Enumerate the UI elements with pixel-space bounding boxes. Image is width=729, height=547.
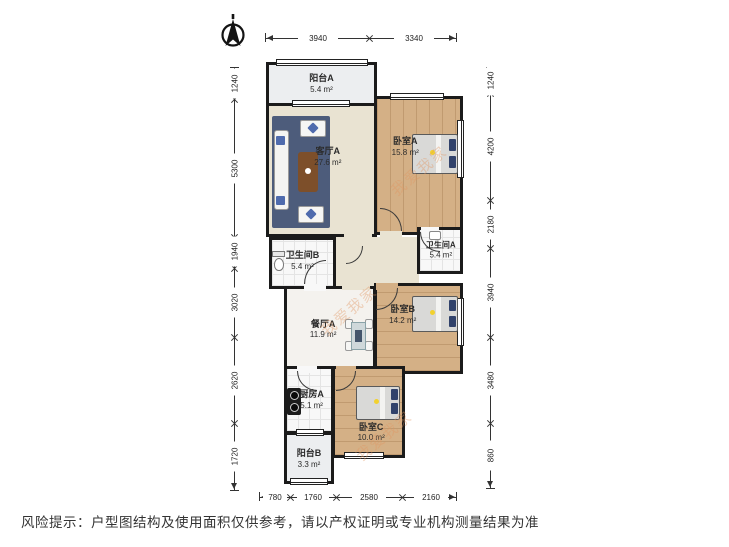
window-bedroom-a-right (457, 120, 464, 178)
opening-foyer-dining (342, 284, 370, 290)
room-area: 11.9 m² (310, 330, 337, 340)
sink-icon (429, 231, 441, 240)
north-compass-icon (218, 13, 248, 58)
window-balcony-a-top (276, 59, 368, 66)
dim-endbar (230, 490, 239, 491)
dim-arrow (449, 494, 455, 500)
dim-label-right-3: 3940 (487, 278, 496, 308)
bed-fold (380, 387, 385, 419)
dim-label-right-2: 2180 (487, 210, 496, 240)
bed-pillow (391, 403, 398, 414)
dim-label-left-5: 1720 (231, 442, 240, 472)
dim-arrow (487, 481, 493, 487)
dim-label-top-0: 3940 (298, 34, 338, 43)
balcony-b-slider-door (296, 429, 324, 436)
room-name: 厨房A (299, 389, 324, 401)
dim-label-bottom-1: 1760 (297, 493, 329, 502)
risk-disclaimer: 风险提示：户型图结构及使用面积仅供参考，请以产权证明或专业机构测量结果为准 (21, 511, 539, 531)
bed-decor (430, 310, 435, 315)
floor-plan-page: 阳台A 5.4 m² 客厅A 27.6 m² 卧室A 15.8 m² 卫生间B … (0, 0, 729, 547)
room-name: 阳台A (309, 73, 334, 85)
dim-tick (230, 333, 239, 342)
room-label-bedroom-a: 卧室A 15.8 m² (392, 136, 419, 158)
room-balcony-b: 阳台B 3.3 m² (284, 432, 334, 484)
room-area: 10.0 m² (358, 433, 385, 443)
balcony-a-slider-door (292, 100, 350, 107)
room-name: 卫生间B (286, 250, 320, 262)
room-label-kitchen-a: 厨房A 5.1 m² (299, 389, 324, 411)
room-area: 3.3 m² (297, 460, 322, 470)
bed-pillow (449, 156, 456, 168)
dim-tick (486, 333, 495, 342)
dim-tick (398, 493, 407, 502)
bed-decor (430, 150, 435, 155)
room-name: 卧室A (392, 136, 419, 148)
dim-tick (486, 196, 495, 205)
dim-tick (486, 244, 495, 253)
dining-table-decor (355, 330, 362, 342)
dim-endbar (456, 33, 457, 42)
room-area: 5.4 m² (426, 251, 456, 261)
room-name: 客厅A (314, 146, 341, 158)
bed-pillow (449, 316, 456, 327)
dim-label-right-5: 860 (487, 441, 496, 471)
dim-label-right-1: 4200 (487, 132, 496, 162)
room-area: 5.1 m² (299, 401, 324, 411)
bed-pillow (391, 389, 398, 400)
room-label-living-a: 客厅A 27.6 m² (314, 146, 341, 168)
dim-arrow (449, 35, 455, 41)
dim-tick (365, 34, 374, 43)
bed-pillow (449, 139, 456, 151)
opening-living-foyer (344, 233, 372, 239)
dim-label-left-0: 1240 (231, 69, 240, 99)
dim-label-left-3: 3020 (231, 288, 240, 318)
dim-tick (230, 419, 239, 428)
room-name: 卧室C (358, 422, 385, 434)
table-decor (305, 168, 311, 174)
toilet-icon (274, 258, 284, 271)
dim-label-left-1: 5300 (231, 154, 240, 184)
corridor-floor (374, 237, 419, 285)
dim-label-right-0: 1240 (487, 66, 496, 96)
door-gap-bath-b (304, 284, 326, 291)
dim-endbar (259, 492, 260, 501)
dim-arrow (231, 483, 237, 489)
dim-endbar (486, 488, 495, 489)
room-name: 阳台B (297, 448, 322, 460)
window-balcony-b-bottom (290, 478, 328, 485)
bed-fold (436, 135, 441, 173)
dining-chair (365, 341, 373, 351)
room-name: 卫生间A (426, 240, 456, 250)
bed-fold (436, 297, 441, 331)
dim-label-bottom-2: 2580 (352, 493, 386, 502)
dim-tick (486, 419, 495, 428)
room-label-bath-a: 卫生间A 5.4 m² (426, 240, 456, 261)
room-area: 5.4 m² (286, 262, 320, 272)
room-area: 5.4 m² (309, 85, 334, 95)
window-bedroom-c-bottom (344, 452, 384, 459)
dim-label-left-4: 2620 (231, 366, 240, 396)
window-bedroom-a-top (390, 93, 444, 100)
window-bedroom-b-right (457, 298, 464, 346)
room-label-balcony-b: 阳台B 3.3 m² (297, 448, 322, 470)
door-gap-bedroom-a (380, 231, 402, 238)
room-name: 餐厅A (310, 319, 337, 331)
dim-label-bottom-3: 2160 (414, 493, 448, 502)
room-label-dining-a: 餐厅A 11.9 m² (310, 319, 337, 341)
toilet-icon (272, 251, 285, 257)
dim-tick (332, 493, 341, 502)
room-label-balcony-a: 阳台A 5.4 m² (309, 73, 334, 95)
sofa-pillow (276, 136, 285, 145)
room-area: 15.8 m² (392, 148, 419, 158)
room-label-bedroom-b: 卧室B 14.2 m² (389, 304, 416, 326)
dim-endbar (456, 492, 457, 501)
dim-tick (286, 493, 295, 502)
dim-label-top-1: 3340 (394, 34, 434, 43)
dim-label-bottom-0: 780 (263, 493, 287, 502)
bed-decor (374, 399, 379, 404)
dim-label-left-2: 1940 (231, 237, 240, 267)
room-area: 14.2 m² (389, 316, 416, 326)
room-area: 27.6 m² (314, 158, 341, 168)
dim-endbar (265, 33, 266, 42)
sofa-pillow (276, 196, 285, 205)
dining-chair (365, 319, 373, 329)
room-label-bath-b: 卫生间B 5.4 m² (286, 250, 320, 272)
room-name: 卧室B (389, 304, 416, 316)
dim-label-right-4: 3480 (487, 366, 496, 396)
dim-arrow (267, 35, 273, 41)
bed-pillow (449, 300, 456, 311)
room-label-bedroom-c: 卧室C 10.0 m² (358, 422, 385, 444)
